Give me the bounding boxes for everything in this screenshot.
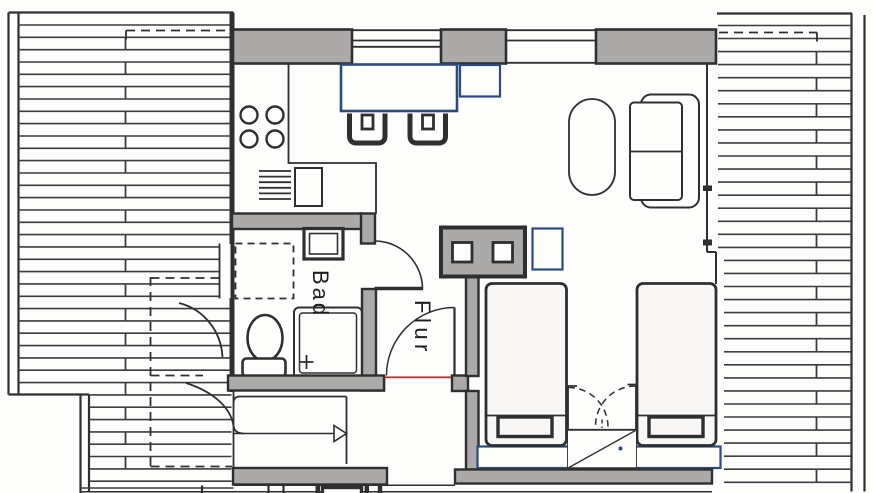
svg-text:Flur: Flur (410, 300, 435, 356)
svg-text:Bad: Bad (308, 270, 333, 318)
